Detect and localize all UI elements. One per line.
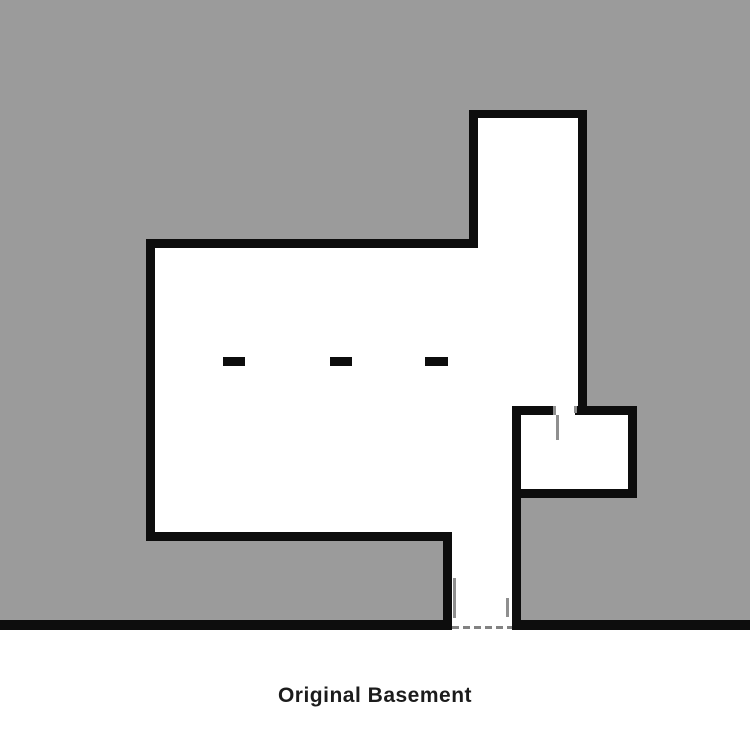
- wall-side-room-right: [628, 406, 637, 498]
- wall-corridor-left: [443, 532, 452, 630]
- figure-canvas: Original Basement: [0, 0, 750, 745]
- ground-line-right: [512, 620, 750, 630]
- corridor-jamb-right: [506, 598, 509, 617]
- interior-main-lower: [155, 248, 512, 532]
- interior-side-room: [521, 415, 628, 489]
- door-jamb-left: [553, 406, 556, 415]
- wall-upper-wing-left: [469, 110, 478, 248]
- door-leaf: [556, 415, 559, 440]
- wall-main-bottom: [146, 532, 452, 541]
- corridor-jamb-left: [453, 578, 456, 618]
- column-marker: [425, 357, 448, 366]
- caption: Original Basement: [0, 684, 750, 710]
- wall-upper-wing-top: [469, 110, 586, 118]
- wall-upper-wing-right: [578, 110, 587, 415]
- ground-line-left: [0, 620, 452, 630]
- wall-main-top: [146, 239, 477, 248]
- interior-stair-corridor: [452, 532, 512, 630]
- column-marker: [223, 357, 245, 366]
- interior-upper-wing: [478, 118, 578, 248]
- door-jamb-right: [574, 406, 577, 413]
- wall-corridor-right: [512, 406, 521, 630]
- wall-main-left: [146, 239, 155, 541]
- column-marker: [330, 357, 352, 366]
- wall-side-room-top-left: [512, 406, 555, 415]
- wall-side-room-bottom: [512, 489, 637, 498]
- threshold-dashed-line: [452, 626, 512, 629]
